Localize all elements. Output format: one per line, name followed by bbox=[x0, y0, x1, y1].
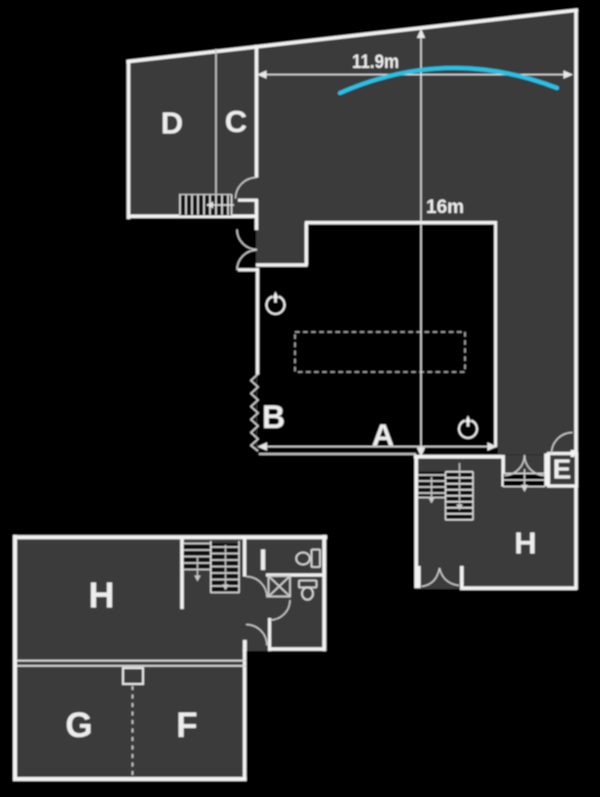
svg-text:16m: 16m bbox=[426, 197, 464, 218]
svg-text:G: G bbox=[65, 706, 92, 745]
svg-text:F: F bbox=[176, 706, 197, 745]
svg-text:11.9m: 11.9m bbox=[352, 52, 399, 73]
svg-text:D: D bbox=[161, 106, 183, 141]
svg-text:H: H bbox=[514, 526, 536, 561]
svg-text:H: H bbox=[89, 575, 115, 616]
svg-text:B: B bbox=[262, 399, 285, 435]
svg-text:I: I bbox=[259, 544, 267, 577]
svg-text:E: E bbox=[553, 454, 572, 485]
svg-text:A: A bbox=[372, 418, 394, 453]
svg-text:C: C bbox=[225, 104, 247, 139]
